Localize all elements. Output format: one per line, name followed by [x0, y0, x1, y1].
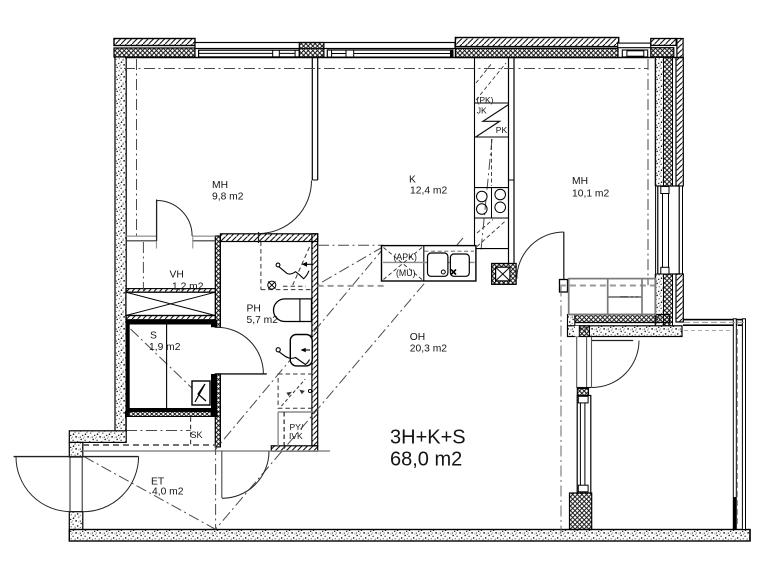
svg-text:1,2 m2: 1,2 m2 — [172, 282, 204, 293]
svg-text:PK: PK — [496, 125, 508, 135]
svg-text:68,0 m2: 68,0 m2 — [390, 449, 462, 471]
svg-text:20,3 m2: 20,3 m2 — [410, 344, 447, 355]
svg-text:K: K — [409, 174, 416, 185]
svg-text:MH: MH — [572, 176, 588, 187]
svg-text:SK: SK — [191, 430, 203, 440]
svg-text:5,7 m2: 5,7 m2 — [247, 315, 279, 326]
svg-text:MH: MH — [212, 180, 228, 191]
svg-text:10,1 m2: 10,1 m2 — [572, 189, 609, 200]
svg-text:4,0 m2: 4,0 m2 — [152, 487, 184, 498]
svg-text:9,8 m2: 9,8 m2 — [212, 192, 244, 203]
svg-text:(PK): (PK) — [477, 95, 494, 105]
svg-text:VH: VH — [170, 270, 184, 281]
svg-text:OH: OH — [410, 332, 425, 343]
svg-text:(APK): (APK) — [394, 252, 418, 262]
svg-text:S: S — [150, 331, 157, 342]
svg-text:JK: JK — [477, 105, 487, 115]
svg-text:1,9 m2: 1,9 m2 — [149, 342, 181, 353]
svg-text:12,4 m2: 12,4 m2 — [410, 186, 447, 197]
svg-text:(MU): (MU) — [396, 268, 416, 278]
svg-text:IVK: IVK — [289, 431, 303, 441]
svg-text:PH: PH — [247, 304, 261, 315]
svg-text:3H+K+S: 3H+K+S — [390, 427, 466, 449]
